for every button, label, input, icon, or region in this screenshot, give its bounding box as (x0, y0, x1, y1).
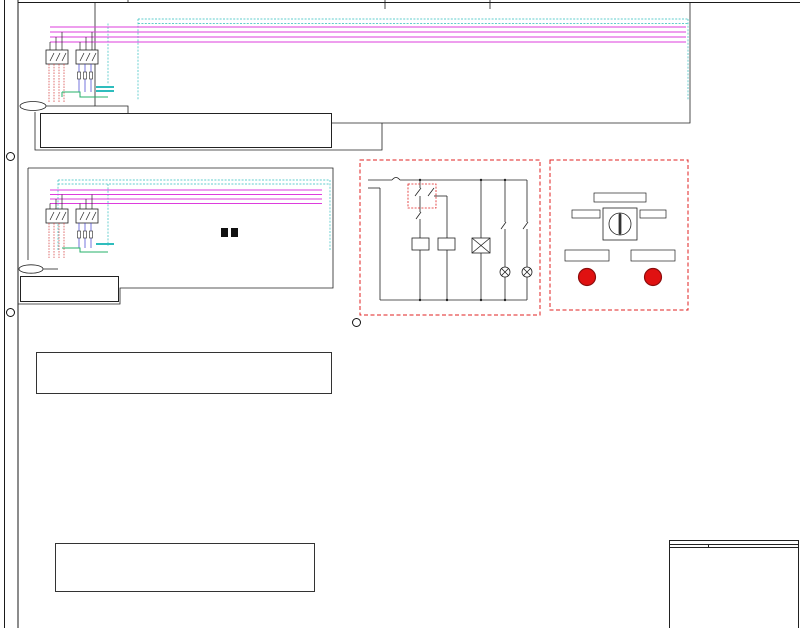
diagram2-neutral-bus (58, 180, 330, 250)
cad-canvas (0, 0, 800, 628)
drawing-sheet (0, 0, 800, 628)
titleblock-diagram2 (20, 276, 119, 302)
selector-switch[interactable] (603, 208, 637, 240)
titleblock-diagram1 (40, 113, 332, 148)
pilot-light-2 (645, 269, 662, 286)
diagram2-main-breakers (46, 195, 238, 259)
diagram1-feeder-balloon (20, 102, 95, 111)
caption-diagram2 (6, 308, 17, 317)
caption-diagram1 (6, 152, 17, 161)
control-diagram (360, 160, 540, 315)
diagram1-main-breakers (46, 32, 114, 103)
pilot-light-1 (579, 269, 596, 286)
diagram2-feeder-balloon (19, 265, 58, 273)
diagram2-phase-bus (50, 190, 322, 204)
caption-control (352, 318, 363, 327)
sheet-frame (5, 0, 800, 628)
table2-info-block (55, 543, 315, 592)
legend-box (669, 540, 799, 628)
legend-col-symbol (670, 545, 709, 547)
door-layout (550, 160, 688, 310)
table1-info-block (36, 352, 332, 394)
diagram1-phase-bus (50, 27, 686, 42)
legend-col-desc (709, 545, 798, 547)
ground-bus (62, 92, 108, 97)
diagram1-neutral-bus (108, 19, 688, 100)
